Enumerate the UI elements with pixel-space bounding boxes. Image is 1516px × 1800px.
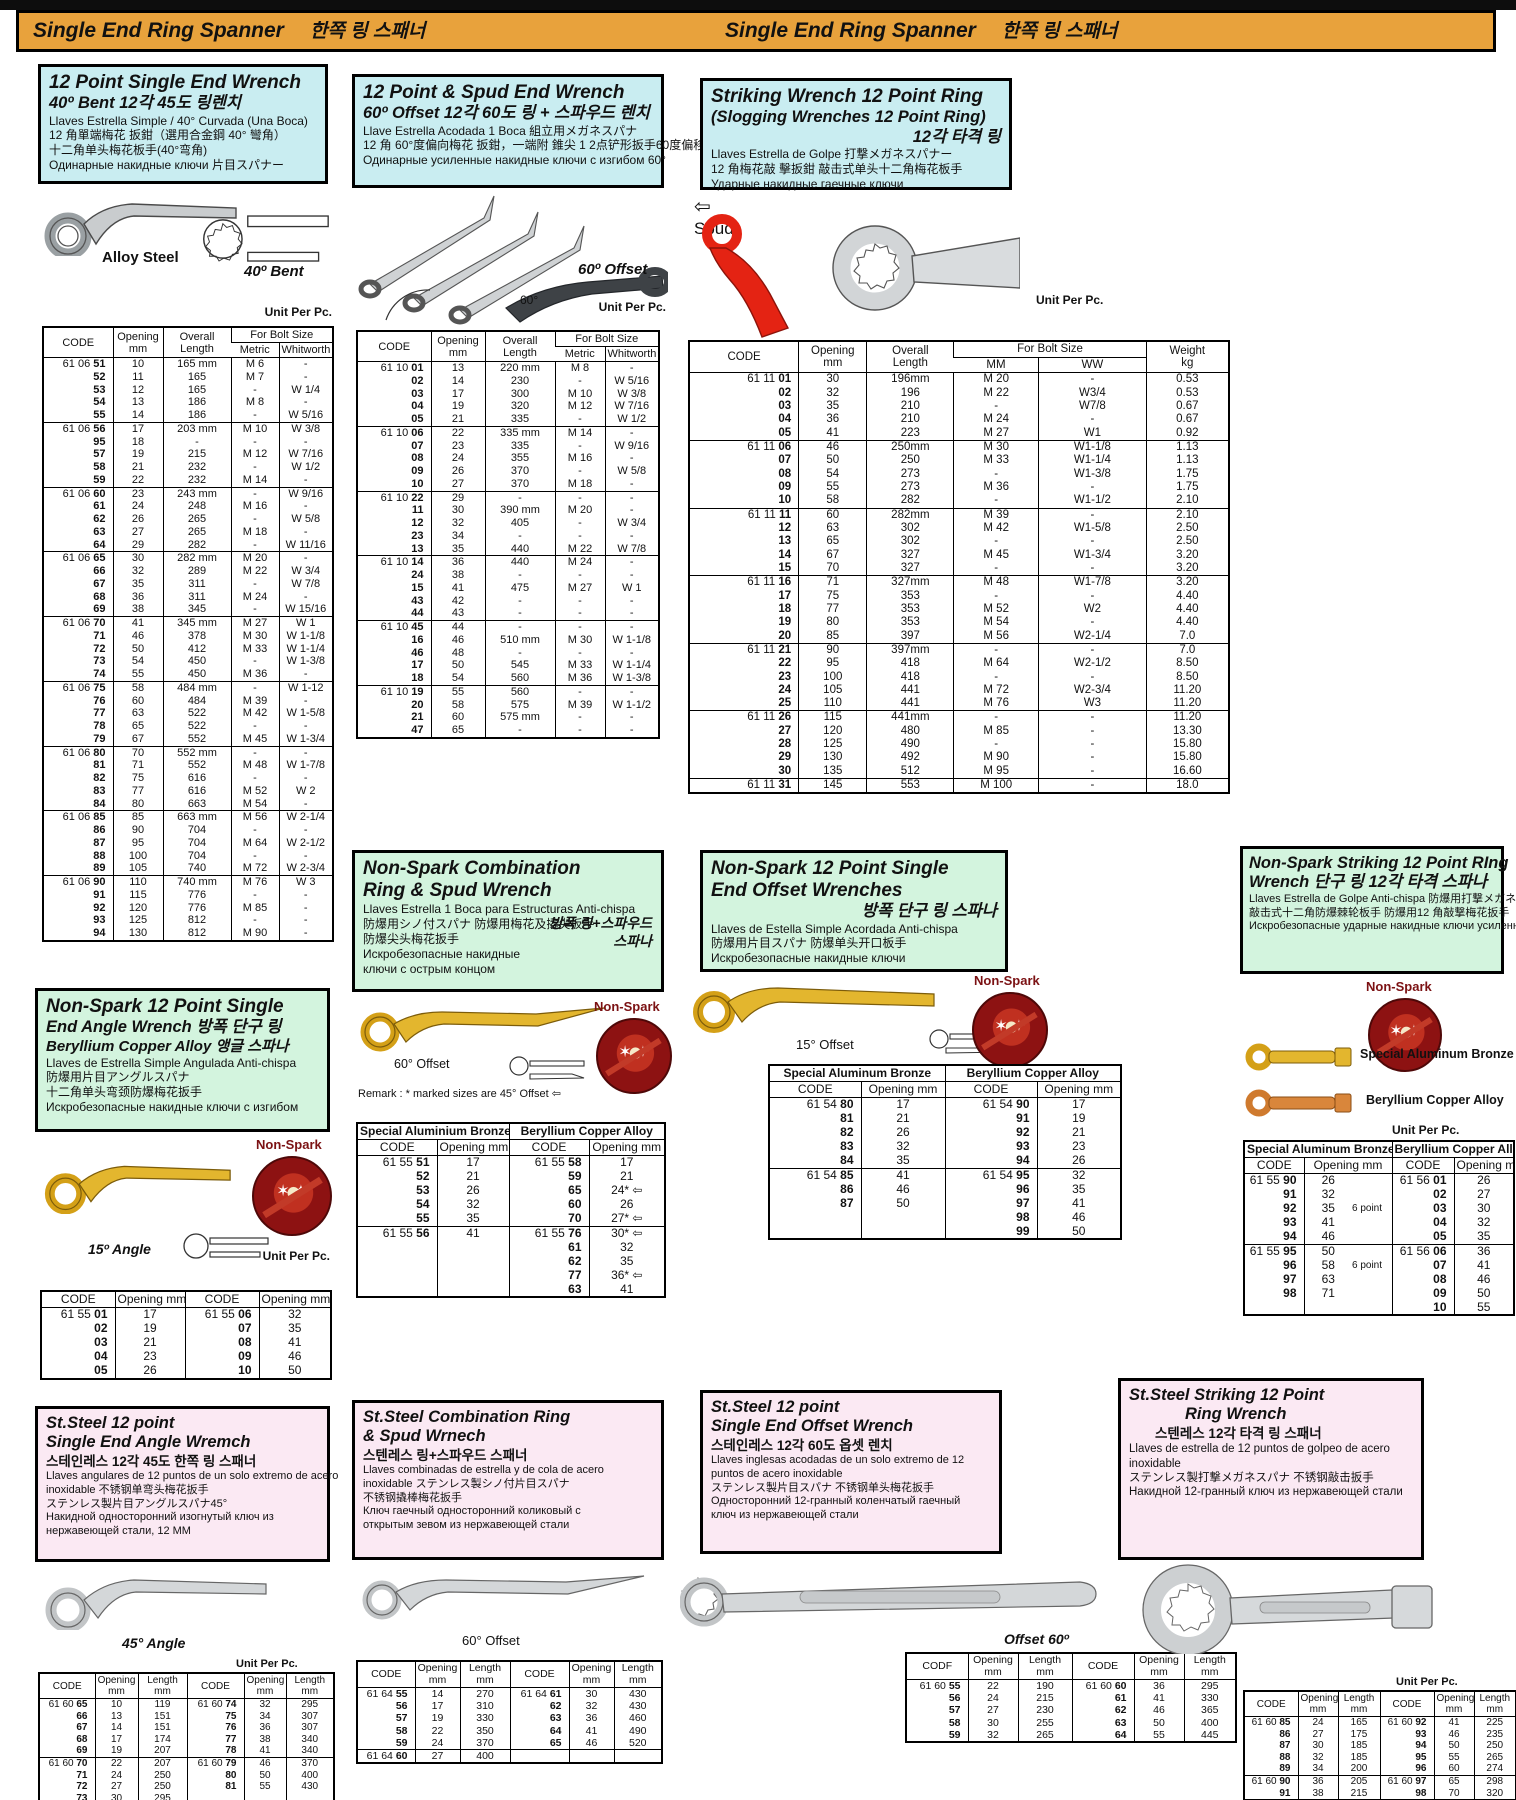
title-2: End Angle Wrench 방폭 단구 링 (46, 1018, 319, 1037)
table-row: 2438--- (357, 569, 659, 582)
table-cell: 75 (113, 772, 163, 785)
table-cell: 552 (163, 759, 231, 772)
table-row: 2295418M 64W2-1/28.50 (689, 657, 1229, 670)
table-cell: 353 (867, 616, 954, 629)
col-code: CODE (357, 1140, 437, 1156)
table-cell: - (605, 504, 659, 517)
table-cell: 77 (43, 707, 113, 720)
table-row: 03210841 (41, 1336, 331, 1350)
table-cell: 30 (95, 1793, 138, 1800)
table-cell: 13 (689, 535, 799, 548)
table-cell: - (555, 711, 605, 724)
desc-ru-2: ключ из нержавеющей стали (711, 1509, 991, 1523)
table-cell: M 76 (231, 876, 279, 889)
table-cell: 522 (163, 707, 231, 720)
table-cell (357, 1241, 437, 1255)
table-cell: 14 (95, 1722, 138, 1734)
table-cell: 430 (614, 1688, 662, 1701)
table-cell: - (231, 513, 279, 526)
table-cell: W 1-3/8 (279, 655, 333, 668)
table-cell: 704 (163, 850, 231, 863)
table-cell: M 36 (231, 668, 279, 681)
table-cell: 273 (867, 468, 954, 481)
table-cell: 165 (1338, 1717, 1380, 1729)
table-row: 7660484M 39- (43, 695, 333, 708)
table-row: 61 06 8070552 mm-- (43, 746, 333, 759)
table-cell: 0.53 (1146, 373, 1229, 387)
table-cell: 36 (1454, 1244, 1514, 1258)
table-row: 29130492M 90-15.80 (689, 751, 1229, 764)
table-cell: W 1/2 (279, 461, 333, 474)
desc-es: Llaves Estrella Simple / 40° Curvada (Un… (49, 114, 317, 129)
table-cell: - (231, 539, 279, 552)
table-cell: 35 (1304, 1202, 1352, 1216)
table-cell: 71 (1304, 1287, 1352, 1301)
table-cell: 90 (113, 824, 163, 837)
table-cell: 50 (113, 643, 163, 656)
table-cell: - (1039, 373, 1147, 387)
table-cell: 255 (1018, 1717, 1072, 1729)
col-whitworth: Whitworth (605, 347, 659, 362)
col-length: OverallLength (867, 341, 954, 373)
table-cell: M 72 (231, 862, 279, 875)
table-cell: 61 10 45 (357, 621, 431, 634)
table-cell: 492 (867, 751, 954, 764)
table-cell: - (231, 850, 279, 863)
table-cell (1352, 1244, 1392, 1258)
table-cell: 42 (431, 595, 485, 608)
table-cell: 55 (431, 685, 485, 698)
table-nonspark-angle: CODE Opening mm CODE Opening mm 61 55 01… (40, 1290, 332, 1380)
table-cell: 553 (867, 779, 954, 794)
col-length: Lengthmm (1018, 1653, 1072, 1680)
table-cell: 340 (286, 1745, 334, 1757)
table-cell: - (279, 889, 333, 902)
table-cell: 13 (95, 1711, 138, 1723)
table-cell: W 5/8 (279, 513, 333, 526)
table-cell: 475 (485, 582, 555, 595)
table-cell: 24 (431, 452, 485, 465)
table-cell: 0.53 (1146, 387, 1229, 400)
table-cell: 353 (867, 603, 954, 616)
table-cell: M 10 (555, 388, 605, 401)
table-row: 7763522M 42W 1-5/8 (43, 707, 333, 720)
table-cell: - (1039, 643, 1147, 657)
table-row: 61 54 854161 54 9532 (769, 1168, 1121, 1182)
table-cell: 71 (113, 759, 163, 772)
table-row: 61 55 511761 55 5817 (357, 1156, 665, 1170)
table-cell: W 1-1/4 (279, 643, 333, 656)
table-cell: 61 11 11 (689, 508, 799, 522)
table-cell: 17 (589, 1156, 665, 1170)
table-cell: 11 (357, 504, 431, 517)
table-cell: 41 (861, 1168, 945, 1182)
table-row: 0419320M 12W 7/16 (357, 400, 659, 413)
desc-zh: 不锈钢撬棒梅花扳手 (363, 1492, 653, 1506)
table-cell: 41 (259, 1336, 331, 1350)
table-row: 61 55 564161 55 7630* ⇦ (357, 1226, 665, 1240)
table-cell: 53 (43, 384, 113, 397)
table-row: 6226265-W 5/8 (43, 513, 333, 526)
title-kr: 스테인레스 12각 45도 한쪽 링 스패너 (46, 1453, 319, 1471)
table-cell: - (231, 746, 279, 759)
table-cell: - (279, 591, 333, 604)
table-cell: 13.30 (1146, 725, 1229, 738)
table-cell: 18 (113, 436, 163, 449)
table-cell: - (231, 578, 279, 591)
title-kr: 스테인레스 12각 60도 옵셋 렌치 (711, 1437, 991, 1455)
table-row: 61 06 7041345 mmM 27W 1 (43, 617, 333, 630)
table-cell: - (555, 413, 605, 426)
table-cell: - (555, 607, 605, 620)
table-cell: W 2 (279, 785, 333, 798)
table-cell: 32 (431, 517, 485, 530)
table-row: 1027370M 18- (357, 478, 659, 491)
table-cell: 27 (1298, 1729, 1338, 1741)
table-cell: 30* ⇦ (589, 1226, 665, 1240)
col-code: CODE (39, 1673, 95, 1699)
table-cell: 61 (1072, 1692, 1134, 1704)
table-cell: 46 (244, 1757, 286, 1769)
table-cell: 82 (43, 772, 113, 785)
table-row: 61 06 5110165 mmM 6- (43, 358, 333, 371)
table-cell: 370 (485, 478, 555, 491)
title-kr: 방폭 단구 링 스파나 (711, 902, 997, 921)
table-nonspark-striking: Special Aluminum Bronze Beryllium Copper… (1243, 1140, 1515, 1316)
table-cell: 64 (1072, 1729, 1134, 1742)
table-cell: 16 (357, 634, 431, 647)
table-cell: - (555, 491, 605, 504)
table-cell: 61 10 14 (357, 556, 431, 569)
col-code: CODE (185, 1291, 259, 1308)
bent-label: 40º Bent (244, 264, 304, 281)
table-cell: 3.20 (1146, 549, 1229, 562)
table-cell: M 12 (231, 448, 279, 461)
table-cell: 71 (43, 630, 113, 643)
table-row: 8690704-- (43, 824, 333, 837)
table-cell: 35 (259, 1322, 331, 1336)
table-row: 4443--- (357, 607, 659, 620)
title-2: Ring Wrench (1129, 1405, 1413, 1424)
table-cell: - (231, 914, 279, 927)
table-cell: 41 (799, 427, 867, 441)
table-cell: 27 (1454, 1188, 1514, 1202)
table-cell: 27* ⇦ (589, 1212, 665, 1226)
table-cell: 450 (163, 655, 231, 668)
table-cell: 70 (509, 1212, 589, 1226)
desc-es: Llaves Estrella de Golpe 打撃メガネスパナー (711, 147, 1001, 162)
table-cell: 98 (945, 1211, 1037, 1225)
table-cell: M 22 (231, 565, 279, 578)
table-cell: 18 (689, 603, 799, 616)
table-cell: 21 (431, 413, 485, 426)
table-cell: 100 (113, 850, 163, 863)
unit-label: Unit Per Pc. (1396, 1676, 1458, 1688)
table-cell: - (279, 798, 333, 811)
gold-offset-wrench-drawing (688, 976, 938, 1034)
table-cell: M 64 (231, 837, 279, 850)
col-code: CODE (1072, 1653, 1134, 1680)
table-cell: 30 (968, 1717, 1018, 1729)
table-row: 04230946 (41, 1350, 331, 1364)
table-cell: 270 (460, 1688, 510, 1701)
unit-label: Unit Per Pc. (238, 306, 332, 319)
table-row: 1570327--3.20 (689, 562, 1229, 576)
table-cell: M 24 (555, 556, 605, 569)
table-cell: 151 (138, 1722, 187, 1734)
title: 12 Point Single End Wrench (49, 72, 317, 94)
desc-ru-2: ключи с острым концом (363, 962, 653, 977)
table-cell: 62 (43, 513, 113, 526)
title: Non-Spark Striking 12 Point RIng (1249, 854, 1495, 873)
table-cell: 59 (357, 1737, 415, 1750)
table-cell: 75 (187, 1711, 244, 1723)
subtitle: 60º Offset 12각 60도 링 + 스파우드 렌치 (363, 104, 653, 123)
table-cell: 87 (43, 837, 113, 850)
table-cell: 14 (113, 409, 163, 422)
table-cell: W1-1/8 (1039, 440, 1147, 454)
table-cell: W 1/4 (279, 384, 333, 397)
table-cell: - (605, 530, 659, 543)
table-cell: 63 (43, 526, 113, 539)
table-cell: 04 (357, 400, 431, 413)
col-code: CODE (1244, 1158, 1304, 1174)
table-cell: 41 (1454, 1259, 1514, 1273)
table-cell: M 20 (954, 373, 1039, 387)
table-row: 61 11 0130196mmM 20-0.53 (689, 373, 1229, 387)
table-cell: 61 60 70 (39, 1757, 95, 1769)
table-row: 91382159870320 (1244, 1788, 1516, 1800)
table-cell: - (279, 824, 333, 837)
table-cell: W1-1/2 (1039, 494, 1147, 508)
table-cell: 86 (769, 1183, 861, 1197)
table-row: 61 10 4544--- (357, 621, 659, 634)
table-cell: 575 mm (485, 711, 555, 724)
table-row: 7250412M 33W 1-1/4 (43, 643, 333, 656)
table-cell: 26 (115, 1364, 185, 1379)
table-cell: 95 (799, 657, 867, 670)
table-row: 72272508155430 (39, 1781, 334, 1793)
header-box-nonspark-offset: Non-Spark 12 Point Single End Offset Wre… (700, 850, 1008, 972)
table-cell: 93 (43, 914, 113, 927)
table-row: 61 10 0113220 mmM 8- (357, 362, 659, 375)
desc-ja-zh: ステンレス製片目スパナ 不锈钢单头梅花扳手 (711, 1482, 991, 1496)
table-row: 24105441M 72W2-3/411.20 (689, 684, 1229, 697)
table-cell: M 85 (954, 725, 1039, 738)
table-cell: 185 (1338, 1740, 1380, 1752)
table-cell: 165 (163, 371, 231, 384)
table-cell: 10 (95, 1699, 138, 1711)
table-row: 61 64 6027400 (357, 1749, 662, 1763)
table-cell: 61 55 58 (509, 1156, 589, 1170)
desc-es: Llaves de Estrella Simple Angulada Anti-… (46, 1056, 319, 1071)
table-cell: - (279, 914, 333, 927)
table-cell: - (605, 426, 659, 439)
table-cell: 50 (799, 454, 867, 467)
gold-spud-wrench-drawing (356, 998, 606, 1054)
table-cell: - (1039, 738, 1147, 751)
table-row: 02190735 (41, 1322, 331, 1336)
table-cell: 97 (1244, 1273, 1304, 1287)
table-row: 61 60 903620561 60 9765298 (1244, 1775, 1516, 1787)
table-cell: 62 (510, 1700, 569, 1712)
table-cell: 441mm (867, 711, 954, 725)
table-cell: 490 (867, 738, 954, 751)
table-cell: 79 (43, 733, 113, 746)
table-cell: W1-1/4 (1039, 454, 1147, 467)
col-code: CODE (43, 327, 113, 358)
table-cell: 41 (1037, 1197, 1121, 1211)
table-cell: 215 (163, 448, 231, 461)
table-cell: 30 (1454, 1202, 1514, 1216)
table-cell: 335 (485, 440, 555, 453)
desc-ru: Накидной односторонний изогнутый ключ из (46, 1511, 319, 1525)
col-opening: Opening mm (589, 1140, 665, 1156)
table-cell: M 42 (954, 522, 1039, 535)
table-cell: W 1-1/2 (605, 699, 659, 712)
table-row: 9950 (769, 1225, 1121, 1240)
unit-label: Unit Per Pc. (236, 1658, 298, 1670)
table-row: 61 64 551427061 64 6130430 (357, 1688, 662, 1701)
table-cell: 19 (115, 1322, 185, 1336)
table-cell: 63 (510, 1712, 569, 1724)
table-cell: 400 (1184, 1717, 1236, 1729)
table-cell: 484 mm (163, 681, 231, 694)
table-row: 61 60 702220761 60 7946370 (39, 1757, 334, 1769)
desc-es-2: puntos de acero inoxidable (711, 1468, 991, 1482)
table-cell: 370 (485, 465, 555, 478)
table-cell: 55 (1454, 1301, 1514, 1316)
table-cell: 08 (689, 468, 799, 481)
table-cell: - (954, 400, 1039, 413)
table-cell: 61 11 26 (689, 711, 799, 725)
table-cell: 35 (589, 1255, 665, 1269)
table-row: 6938345-W 15/16 (43, 603, 333, 616)
table-cell: 440 (485, 556, 555, 569)
table-cell: 205 (1338, 1775, 1380, 1787)
table-cell: - (279, 720, 333, 733)
table-row: 5821232-W 1/2 (43, 461, 333, 474)
table-cell (1352, 1174, 1392, 1188)
table-cell (1352, 1216, 1392, 1230)
nonspark-label: Non-Spark (594, 1000, 660, 1014)
table-cell: 73 (39, 1793, 95, 1800)
table-row: 8171552M 48W 1-7/8 (43, 759, 333, 772)
col-opening: Opening mm (259, 1291, 331, 1308)
desc-es: Llaves combinadas de estrella y de cola … (363, 1464, 653, 1478)
table-cell: 445 (1184, 1729, 1236, 1742)
table-cell: 50 (1304, 1244, 1352, 1258)
table-row: 88321859555265 (1244, 1752, 1516, 1764)
table-row: 27120480M 85-13.30 (689, 725, 1229, 738)
band-beryllium-copper: Beryllium Copper Alloy (509, 1123, 665, 1140)
table-cell: 232 (163, 461, 231, 474)
table-cell: 61 60 60 (1072, 1680, 1134, 1693)
table-row: 86271759346235 (1244, 1729, 1516, 1741)
title: Striking Wrench 12 Point Ring (711, 86, 1001, 108)
unit-label: Unit Per Pc. (1036, 294, 1103, 307)
desc-ru: Искробезопасные накидные ключи с изгибом (46, 1100, 319, 1115)
table-cell: W 3/4 (605, 517, 659, 530)
table-cell: 93 (1380, 1729, 1434, 1741)
table-cell: 57 (906, 1704, 968, 1716)
table-cell: 330 (1184, 1692, 1236, 1704)
steel-bent-wrench-drawing (40, 1568, 270, 1630)
table-row: 61 55 955061 56 0636 (1244, 1244, 1514, 1258)
table-cell: 94 (945, 1154, 1037, 1168)
table-cell: 89 (1244, 1763, 1298, 1775)
header-box-ststeel-offset: St.Steel 12 point Single End Offset Wren… (700, 1390, 1002, 1554)
table-cell: 12 (113, 384, 163, 397)
table-cell: 17 (113, 422, 163, 435)
table-cell: 203 mm (163, 422, 231, 435)
table-cell: 61 60 79 (187, 1757, 244, 1769)
table-cell: 61 (509, 1241, 589, 1255)
table-cell: M 56 (954, 630, 1039, 644)
table-cell: 207 (138, 1745, 187, 1757)
table-cell: 75 (799, 590, 867, 603)
table-cell: 17 (431, 388, 485, 401)
table-cell: 11 (113, 371, 163, 384)
col-mm: MM (954, 357, 1039, 373)
table-cell: M 48 (954, 576, 1039, 590)
table-cell: 95 (113, 837, 163, 850)
table-cell: 41 (113, 617, 163, 630)
table-row: 1877353M 52W24.40 (689, 603, 1229, 616)
table-cell: 120 (113, 902, 163, 915)
table-cell: W1-3/4 (1039, 549, 1147, 562)
col-weight: Weightkg (1146, 341, 1229, 373)
table-cell: - (605, 595, 659, 608)
header-box-nonspark-angle: Non-Spark 12 Point Single End Angle Wren… (35, 988, 330, 1132)
table-cell: 320 (1474, 1788, 1516, 1800)
table-cell: 54 (357, 1198, 437, 1212)
table-cell: 307 (286, 1711, 334, 1723)
table-cell: 08 (357, 452, 431, 465)
title-kr: 방폭 링+스파우드스파나 (550, 915, 652, 950)
table-cell: M 24 (231, 591, 279, 604)
table-cell: 67 (39, 1722, 95, 1734)
table-cell: 05 (689, 427, 799, 441)
table-cell: 63 (113, 707, 163, 720)
table-row: 89105740M 72W 2-3/4 (43, 862, 333, 875)
table-cell: W 1/2 (605, 413, 659, 426)
table-cell: 207 (138, 1757, 187, 1769)
table-cell: 418 (867, 671, 954, 684)
table-row: 25110441M 76W311.20 (689, 697, 1229, 711)
table-cell: 71 (39, 1770, 95, 1782)
table-cell: 80 (187, 1770, 244, 1782)
table-cell: 10 (113, 358, 163, 371)
col-opening: Openingmm (415, 1661, 460, 1688)
table-cell: M 16 (231, 500, 279, 513)
table-cell: 61 55 76 (509, 1226, 589, 1240)
table-cell: - (279, 526, 333, 539)
table-cell: 61 55 51 (357, 1156, 437, 1170)
table-cell: 61 54 85 (769, 1168, 861, 1182)
table-cell: W3 (1039, 697, 1147, 711)
table-cell: M 39 (555, 699, 605, 712)
col-code: CODE (945, 1082, 1037, 1098)
table-cell: 12 (689, 522, 799, 535)
table-cell: W 1-12 (279, 681, 333, 694)
table-cell: 59 (906, 1729, 968, 1742)
table-cell: 61 06 65 (43, 552, 113, 565)
table-cell: M 56 (231, 811, 279, 824)
table-row: 1058282-W1-1/22.10 (689, 494, 1229, 508)
table-cell: 65 (113, 720, 163, 733)
header-box-ststeel-combination: St.Steel Combination Ring & Spud Wrnech … (352, 1400, 664, 1560)
